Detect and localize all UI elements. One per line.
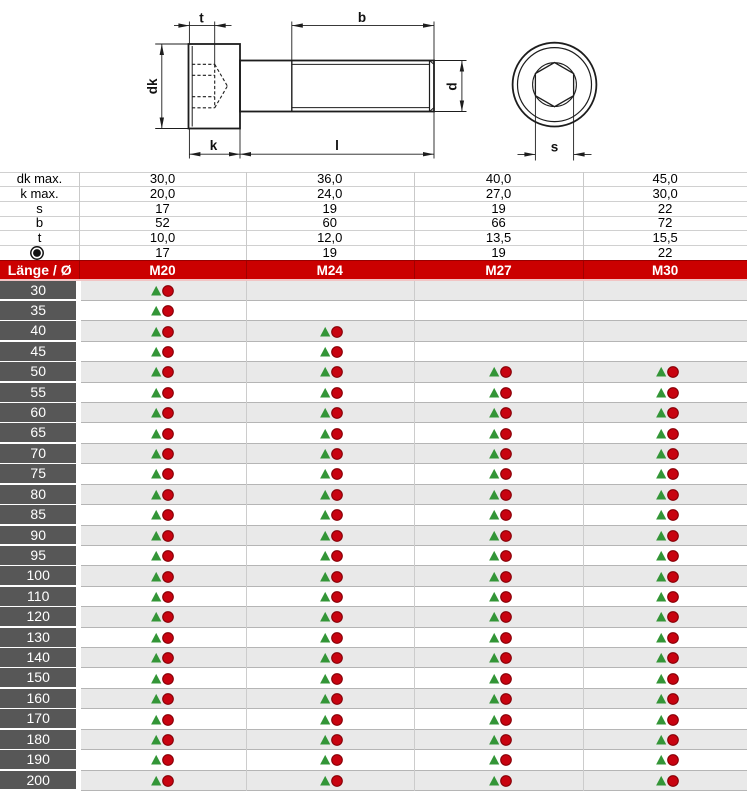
svg-text:t: t [199, 11, 204, 26]
svg-text:dk: dk [145, 78, 160, 94]
svg-text:s: s [551, 140, 559, 155]
svg-text:b: b [358, 10, 366, 25]
svg-text:k: k [210, 138, 218, 153]
svg-text:d: d [445, 82, 460, 90]
svg-text:l: l [335, 138, 339, 153]
